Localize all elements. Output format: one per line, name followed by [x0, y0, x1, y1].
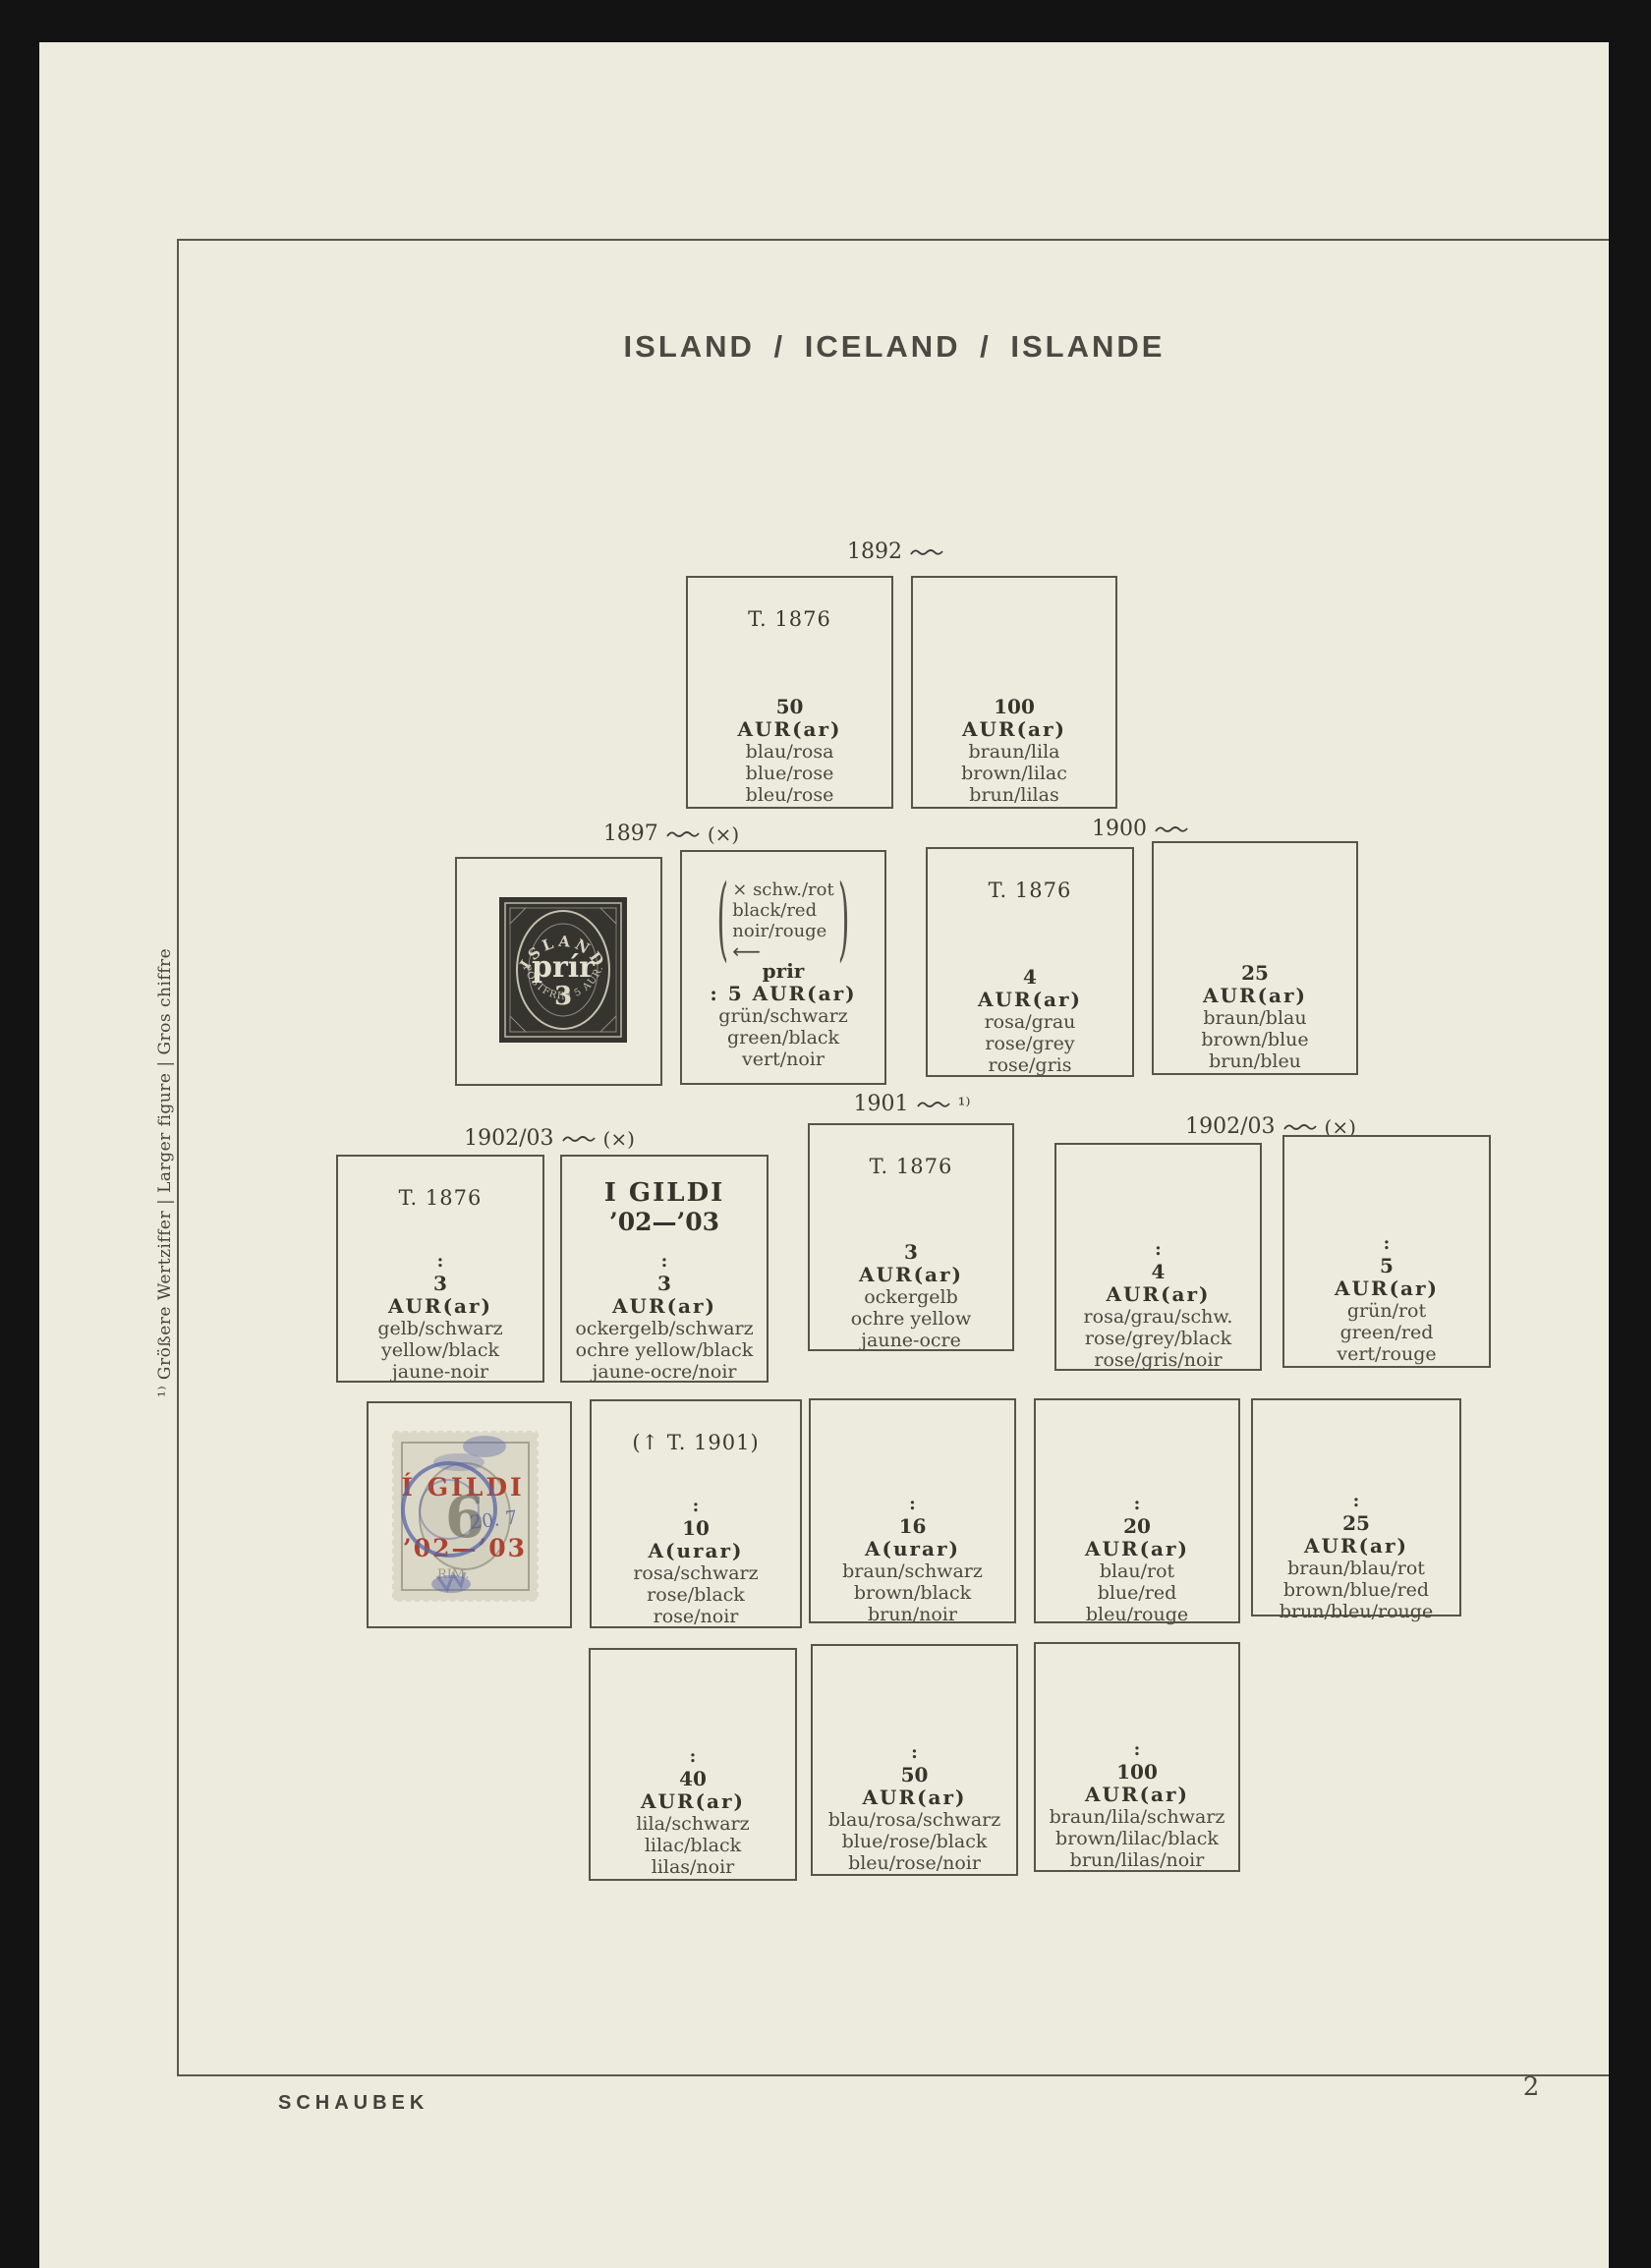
- page-number: 2: [1502, 2072, 1561, 2102]
- color-de: rosa/grau/schw.: [1056, 1306, 1260, 1328]
- currency-unit: AUR(ar): [913, 717, 1115, 741]
- currency-unit: AUR(ar): [562, 1294, 767, 1318]
- paren-open: (: [717, 867, 729, 974]
- type-note: (↑ T. 1901): [592, 1431, 800, 1454]
- year-suffix: (×): [708, 822, 739, 846]
- color-de: lila/schwarz: [591, 1813, 795, 1835]
- overprint-line2: ’02—’03: [562, 1208, 767, 1237]
- publisher-imprint: SCHAUBEK: [278, 2092, 428, 2115]
- color-de: rosa/grau: [928, 1011, 1132, 1033]
- year-header-1892: 1892: [771, 539, 1027, 564]
- year-header-1900: 1900: [1016, 817, 1272, 841]
- footnote-dots: [688, 676, 891, 696]
- stamp-slot-50aur: T. 1876 50 AUR(ar) blau/rosa blue/rose b…: [686, 576, 893, 809]
- slot-description: 4 AUR(ar) rosa/grau rose/grey rose/gris: [928, 946, 1132, 1076]
- margin-footnote: ¹⁾ Größere Wertziffer | Larger figure | …: [155, 959, 175, 1397]
- year-label: 1902/03: [1185, 1114, 1275, 1139]
- annotation-fr: noir/rouge: [732, 921, 833, 941]
- currency-unit: AUR(ar): [1284, 1276, 1489, 1300]
- type-note: T. 1876: [810, 1155, 1012, 1178]
- stamp-slot-3aur-ochre: T. 1876 3 AUR(ar) ockergelb ochre yellow…: [808, 1123, 1014, 1351]
- annotation-en: black/red: [732, 900, 833, 921]
- footnote-dots: :: [1036, 1741, 1238, 1761]
- color-de: braun/blau/rot: [1253, 1558, 1459, 1579]
- slot-description: : 10 A(urar) rosa/schwarz rose/black ros…: [592, 1498, 800, 1627]
- annotation-lines: × schw./rot black/red noir/rouge ⟵: [732, 879, 833, 961]
- wave-icon: [1155, 823, 1188, 835]
- color-en: blue/rose: [688, 763, 891, 784]
- color-fr: jaune-ocre/noir: [562, 1361, 767, 1383]
- stamp-overprint-prir: prír: [532, 950, 596, 985]
- denomination: 5: [1284, 1255, 1489, 1276]
- footnote-dots: :: [813, 1744, 1016, 1764]
- color-fr: bleu/rose/noir: [813, 1852, 1016, 1874]
- color-de: blau/rot: [1036, 1560, 1238, 1582]
- stamp-slot-6aur-mounted: 6 RIM. Í GILDI ’02—’03 20. 7: [367, 1401, 572, 1628]
- denomination: 4: [1056, 1261, 1260, 1282]
- stamp-slot-100aur: 100 AUR(ar) braun/lila brown/lilac brun/…: [911, 576, 1117, 809]
- stamp-slot-4aur-tricolor: : 4 AUR(ar) rosa/grau/schw. rose/grey/bl…: [1054, 1143, 1262, 1371]
- overprint-note: I GILDI ’02—’03: [562, 1178, 767, 1237]
- denomination: 20: [1036, 1515, 1238, 1537]
- slot-description: : 3 AUR(ar) ockergelb/schwarz ochre yell…: [562, 1253, 767, 1383]
- color-fr: jaune-ocre: [810, 1330, 1012, 1351]
- wave-icon: [562, 1133, 596, 1145]
- stamp-slot-16aur: : 16 A(urar) braun/schwarz brown/black b…: [809, 1398, 1016, 1623]
- slot-description: 50 AUR(ar) blau/rosa blue/rose bleu/rose: [688, 676, 891, 806]
- color-fr: bleu/rose: [688, 784, 891, 806]
- slot-description: : 5 AUR(ar) grün/rot green/red vert/roug…: [1284, 1235, 1489, 1365]
- wave-icon: [910, 546, 943, 558]
- color-de: blau/rosa: [688, 741, 891, 763]
- slot-description: prir : 5 AUR(ar) grün/schwarz green/blac…: [682, 960, 884, 1070]
- color-de: braun/schwarz: [811, 1560, 1014, 1582]
- type-note: T. 1876: [928, 879, 1132, 902]
- year-suffix: ¹⁾: [958, 1093, 971, 1116]
- denomination: 40: [591, 1768, 795, 1789]
- overprint-line1: I GILDI: [562, 1178, 767, 1208]
- color-en: ochre yellow: [810, 1308, 1012, 1330]
- footnote-dots: [913, 676, 1115, 696]
- currency-unit: AUR(ar): [1253, 1534, 1459, 1558]
- color-fr: jaune-noir: [338, 1361, 542, 1383]
- slot-description: : 3 AUR(ar) gelb/schwarz yellow/black ja…: [338, 1253, 542, 1383]
- color-de: blau/rosa/schwarz: [813, 1809, 1016, 1831]
- color-en: rose/black: [592, 1584, 800, 1606]
- color-fr: brun/lilas: [913, 784, 1115, 806]
- denomination: 25: [1253, 1512, 1459, 1534]
- denomination: 25: [1154, 962, 1356, 984]
- stamp-slot-prir3: ISLAND POSTFRIM 5 AUR. prír 3: [455, 857, 662, 1086]
- color-en: lilac/black: [591, 1835, 795, 1856]
- color-fr: brun/bleu/rouge: [1253, 1601, 1459, 1622]
- year-label: 1897: [603, 822, 658, 846]
- wave-icon: [666, 828, 700, 840]
- slot-description: : 25 AUR(ar) braun/blau/rot brown/blue/r…: [1253, 1493, 1459, 1622]
- currency-unit: AUR(ar): [1154, 984, 1356, 1007]
- overprint-name: prir: [682, 960, 884, 982]
- color-en: brown/lilac/black: [1036, 1828, 1238, 1849]
- stamp-image-6aur-gildi: 6 RIM. Í GILDI ’02—’03 20. 7: [390, 1429, 541, 1604]
- color-fr: vert/rouge: [1284, 1343, 1489, 1365]
- currency-unit: AUR(ar): [928, 988, 1132, 1011]
- stamp-slot-20aur: : 20 AUR(ar) blau/rot blue/red bleu/roug…: [1034, 1398, 1240, 1623]
- color-fr: bleu/rouge: [1036, 1604, 1238, 1625]
- year-suffix: (×): [603, 1127, 635, 1151]
- stamp-overprint-3: 3: [554, 982, 572, 1011]
- color-de: ockergelb/schwarz: [562, 1318, 767, 1339]
- denomination: 3: [810, 1241, 1012, 1263]
- left-arrow-icon: ⟵: [732, 941, 833, 961]
- color-fr: vert/noir: [682, 1049, 884, 1070]
- denomination: 10: [592, 1517, 800, 1539]
- footnote-dots: [810, 1221, 1012, 1241]
- color-en: green/red: [1284, 1322, 1489, 1343]
- footnote-dots: :: [1284, 1235, 1489, 1255]
- stamp-slot-4aur: T. 1876 4 AUR(ar) rosa/grau rose/grey ro…: [926, 847, 1134, 1077]
- color-en: blue/rose/black: [813, 1831, 1016, 1852]
- color-fr: rose/gris: [928, 1054, 1132, 1076]
- color-en: rose/grey/black: [1056, 1328, 1260, 1349]
- denomination-line: : 5 AUR(ar): [682, 982, 884, 1005]
- type-note: T. 1876: [338, 1186, 542, 1210]
- footnote-dots: [928, 946, 1132, 966]
- stamp-slot-100aur-tricolor: : 100 AUR(ar) braun/lila/schwarz brown/l…: [1034, 1642, 1240, 1872]
- color-de: braun/lila: [913, 741, 1115, 763]
- type-note: T. 1876: [688, 607, 891, 631]
- year-label: 1892: [847, 539, 902, 564]
- color-fr: lilas/noir: [591, 1856, 795, 1878]
- stamp-slot-25aur-tricolor: : 25 AUR(ar) braun/blau/rot brown/blue/r…: [1251, 1398, 1461, 1616]
- scan-background: ISLAND / ICELAND / ISLANDE ¹⁾ Größere We…: [0, 0, 1651, 2268]
- slot-description: : 40 AUR(ar) lila/schwarz lilac/black li…: [591, 1748, 795, 1878]
- currency-unit: AUR(ar): [1036, 1537, 1238, 1560]
- slot-description: 25 AUR(ar) braun/blau brown/blue brun/bl…: [1154, 942, 1356, 1072]
- color-en: brown/blue/red: [1253, 1579, 1459, 1601]
- slot-description: : 50 AUR(ar) blau/rosa/schwarz blue/rose…: [813, 1744, 1016, 1874]
- currency-unit: AUR(ar): [813, 1786, 1016, 1809]
- footnote-dots: :: [1056, 1241, 1260, 1261]
- stamp-red-overprint-1: Í GILDI: [401, 1473, 524, 1502]
- denomination: 4: [928, 966, 1132, 988]
- slot-description: : 16 A(urar) braun/schwarz brown/black b…: [811, 1496, 1014, 1625]
- color-en: green/black: [682, 1027, 884, 1049]
- color-fr: brun/bleu: [1154, 1050, 1356, 1072]
- color-en: brown/lilac: [913, 763, 1115, 784]
- footnote-dots: :: [562, 1253, 767, 1273]
- footnote-dots: [1154, 942, 1356, 962]
- color-en: ochre yellow/black: [562, 1339, 767, 1361]
- currency-unit: AUR(ar): [1036, 1783, 1238, 1806]
- color-en: brown/black: [811, 1582, 1014, 1604]
- denomination: 100: [1036, 1761, 1238, 1783]
- currency-unit: A(urar): [592, 1539, 800, 1562]
- stamp-slot-40aur: : 40 AUR(ar) lila/schwarz lilac/black li…: [589, 1648, 797, 1881]
- denomination: 16: [811, 1515, 1014, 1537]
- paren-close: ): [838, 867, 850, 974]
- color-de: ockergelb: [810, 1286, 1012, 1308]
- footnote-dots: :: [591, 1748, 795, 1768]
- wave-icon: [917, 1099, 950, 1110]
- color-de: grün/schwarz: [682, 1005, 884, 1027]
- stamp-slot-10aur: (↑ T. 1901) : 10 A(urar) rosa/schwarz ro…: [590, 1399, 802, 1628]
- album-page: ISLAND / ICELAND / ISLANDE ¹⁾ Größere We…: [39, 42, 1609, 2268]
- annotation-de: × schw./rot: [732, 879, 833, 900]
- color-de: braun/blau: [1154, 1007, 1356, 1029]
- stamp-image-prir-3: ISLAND POSTFRIM 5 AUR. prír 3: [498, 896, 628, 1044]
- year-header-1897: 1897 (×): [543, 822, 799, 846]
- stamp-slot-25aur: 25 AUR(ar) braun/blau brown/blue brun/bl…: [1152, 841, 1358, 1075]
- slot-description: 100 AUR(ar) braun/lila brown/lilac brun/…: [913, 676, 1115, 806]
- currency-unit: AUR(ar): [591, 1789, 795, 1813]
- page-title: ISLAND / ICELAND / ISLANDE: [472, 329, 1317, 365]
- denomination: 100: [913, 696, 1115, 717]
- footnote-dots: :: [592, 1498, 800, 1517]
- footnote-dots: :: [1253, 1493, 1459, 1512]
- year-header-1901: 1901 ¹⁾: [784, 1092, 1040, 1116]
- currency-unit: AUR(ar): [810, 1263, 1012, 1286]
- denomination: 50: [813, 1764, 1016, 1786]
- color-de: rosa/schwarz: [592, 1562, 800, 1584]
- currency-unit: AUR(ar): [688, 717, 891, 741]
- stamp-slot-5aur: : 5 AUR(ar) grün/rot green/red vert/roug…: [1282, 1135, 1491, 1368]
- slot-description: : 20 AUR(ar) blau/rot blue/red bleu/roug…: [1036, 1496, 1238, 1625]
- color-de: grün/rot: [1284, 1300, 1489, 1322]
- year-label: 1902/03: [464, 1126, 553, 1151]
- color-fr: brun/noir: [811, 1604, 1014, 1625]
- slot-description: : 100 AUR(ar) braun/lila/schwarz brown/l…: [1036, 1741, 1238, 1871]
- footnote-dots: :: [811, 1496, 1014, 1515]
- wave-icon: [1283, 1121, 1317, 1133]
- color-de: braun/lila/schwarz: [1036, 1806, 1238, 1828]
- stamp-slot-3aur-igildi: I GILDI ’02—’03 : 3 AUR(ar) ockergelb/sc…: [560, 1155, 769, 1383]
- color-en: yellow/black: [338, 1339, 542, 1361]
- color-en: brown/blue: [1154, 1029, 1356, 1050]
- footnote-dots: :: [1036, 1496, 1238, 1515]
- denomination: 3: [338, 1273, 542, 1294]
- footnote-dots: :: [338, 1253, 542, 1273]
- year-label: 1900: [1092, 817, 1147, 841]
- color-fr: rose/gris/noir: [1056, 1349, 1260, 1371]
- color-en: rose/grey: [928, 1033, 1132, 1054]
- currency-unit: AUR(ar): [338, 1294, 542, 1318]
- slot-description: 3 AUR(ar) ockergelb ochre yellow jaune-o…: [810, 1221, 1012, 1351]
- denomination: 3: [562, 1273, 767, 1294]
- currency-unit: A(urar): [811, 1537, 1014, 1560]
- year-header-1902-03-left: 1902/03 (×): [422, 1126, 677, 1151]
- stamp-slot-prir-5aur: ( × schw./rot black/red noir/rouge ⟵ ) p…: [680, 850, 886, 1085]
- currency-unit: AUR(ar): [1056, 1282, 1260, 1306]
- stamp-slot-50aur-tricolor: : 50 AUR(ar) blau/rosa/schwarz blue/rose…: [811, 1644, 1018, 1876]
- denomination: 50: [688, 696, 891, 717]
- stamp-slot-3aur-yellow: T. 1876 : 3 AUR(ar) gelb/schwarz yellow/…: [336, 1155, 544, 1383]
- color-fr: rose/noir: [592, 1606, 800, 1627]
- year-label: 1901: [854, 1092, 909, 1116]
- color-de: gelb/schwarz: [338, 1318, 542, 1339]
- slot-description: : 4 AUR(ar) rosa/grau/schw. rose/grey/bl…: [1056, 1241, 1260, 1371]
- color-fr: brun/lilas/noir: [1036, 1849, 1238, 1871]
- color-variant-annotation: ( × schw./rot black/red noir/rouge ⟵ ): [682, 879, 884, 961]
- color-en: blue/red: [1036, 1582, 1238, 1604]
